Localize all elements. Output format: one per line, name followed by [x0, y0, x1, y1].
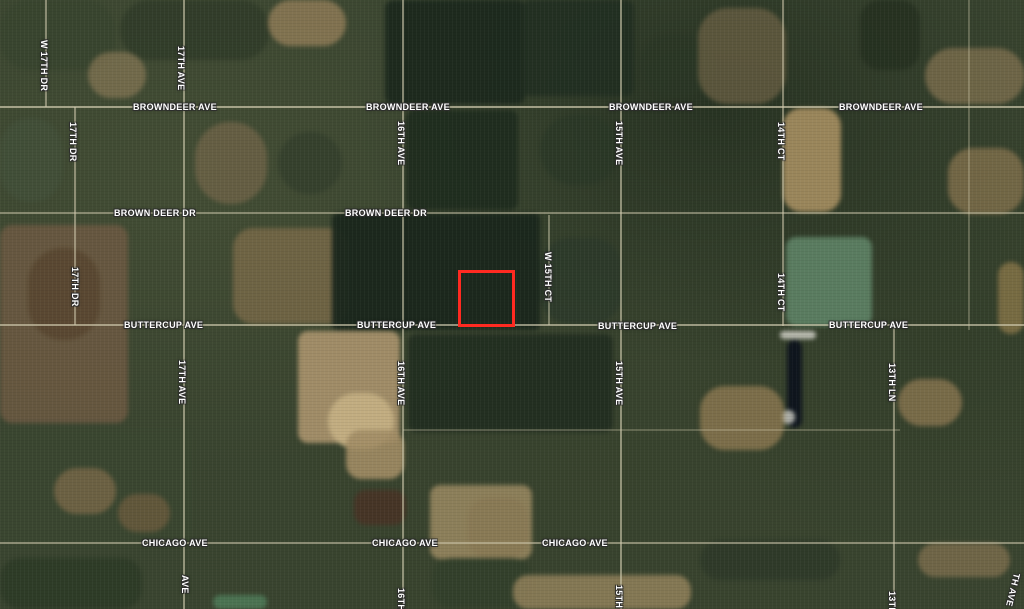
road-label: 15TH: [614, 585, 624, 608]
road-label: CHICAGO AVE: [142, 538, 208, 548]
terrain-patch: [948, 148, 1024, 214]
terrain-patch: [120, 0, 270, 60]
road-label: BROWN DEER DR: [345, 208, 427, 218]
road-label: 17TH AVE: [176, 46, 186, 90]
terrain-patch: [540, 115, 620, 185]
road-label: 14TH CT: [776, 273, 786, 312]
terrain-patch: [346, 430, 404, 479]
road-label: BROWNDEER AVE: [839, 102, 923, 112]
road-label: BUTTERCUP AVE: [357, 320, 436, 330]
road-label: BROWNDEER AVE: [133, 102, 217, 112]
road-label: CHICAGO AVE: [372, 538, 438, 548]
terrain-patch: [54, 468, 116, 514]
road-label: BUTTERCUP AVE: [829, 320, 908, 330]
terrain-patch: [786, 237, 872, 326]
terrain-patch: [0, 558, 142, 609]
terrain-patch: [783, 108, 841, 212]
terrain-patch: [513, 575, 691, 609]
road-label: 17TH AVE: [177, 360, 187, 404]
terrain-patch: [278, 132, 342, 194]
road-label: 16TH AVE: [396, 361, 406, 405]
road-label: CHICAGO AVE: [542, 538, 608, 548]
road-label: 17TH DR: [70, 267, 80, 307]
road-label: BUTTERCUP AVE: [124, 320, 203, 330]
terrain-patch: [118, 494, 170, 532]
road-label: 13TH: [887, 591, 897, 609]
road-label: 15TH AVE: [614, 361, 624, 405]
road-field-boundary-right: [968, 0, 970, 330]
terrain-patch: [918, 543, 1010, 577]
road-label: BROWNDEER AVE: [366, 102, 450, 112]
terrain-patch: [354, 490, 406, 525]
road-label: BUTTERCUP AVE: [598, 321, 677, 331]
terrain-patch: [700, 386, 784, 450]
terrain-patch: [408, 334, 613, 432]
road-15th-ave: [620, 0, 622, 609]
terrain-patch: [925, 48, 1024, 104]
terrain-patch: [698, 8, 786, 104]
terrain-patch: [88, 52, 146, 98]
road-label: AVE: [180, 575, 190, 594]
terrain-patch: [898, 379, 962, 426]
terrain-patch: [0, 118, 62, 202]
terrain-patch: [385, 0, 525, 104]
road-label: BROWNDEER AVE: [609, 102, 693, 112]
parcel-highlight[interactable]: [458, 270, 515, 327]
terrain-patch: [700, 540, 840, 580]
terrain-patch: [195, 122, 267, 204]
road-label: W 15TH CT: [543, 252, 553, 302]
terrain-patch: [268, 0, 346, 46]
road-17th-ave: [183, 0, 185, 609]
road-label: W 17TH DR: [39, 40, 49, 91]
terrain-patch: [213, 595, 267, 609]
road-16th-ave: [402, 0, 404, 609]
road-label: 17TH DR: [68, 122, 78, 162]
terrain-patch: [406, 110, 518, 210]
terrain-patch: [522, 0, 634, 96]
road-label: 16TH: [396, 588, 406, 609]
satellite-map-canvas[interactable]: W 17TH DR17TH AVE17TH DR16TH AVE15TH AVE…: [0, 0, 1024, 609]
terrain-patch: [468, 498, 528, 558]
terrain-patch: [780, 331, 816, 339]
terrain-patch: [860, 0, 920, 70]
road-label: 15TH AVE: [614, 121, 624, 165]
road-label: 14TH CT: [776, 122, 786, 161]
road-label: BROWN DEER DR: [114, 208, 196, 218]
terrain-patch: [28, 248, 100, 340]
road-label: 13TH LN: [887, 363, 897, 402]
road-field-boundary: [403, 429, 900, 431]
road-label: 16TH AVE: [396, 121, 406, 165]
